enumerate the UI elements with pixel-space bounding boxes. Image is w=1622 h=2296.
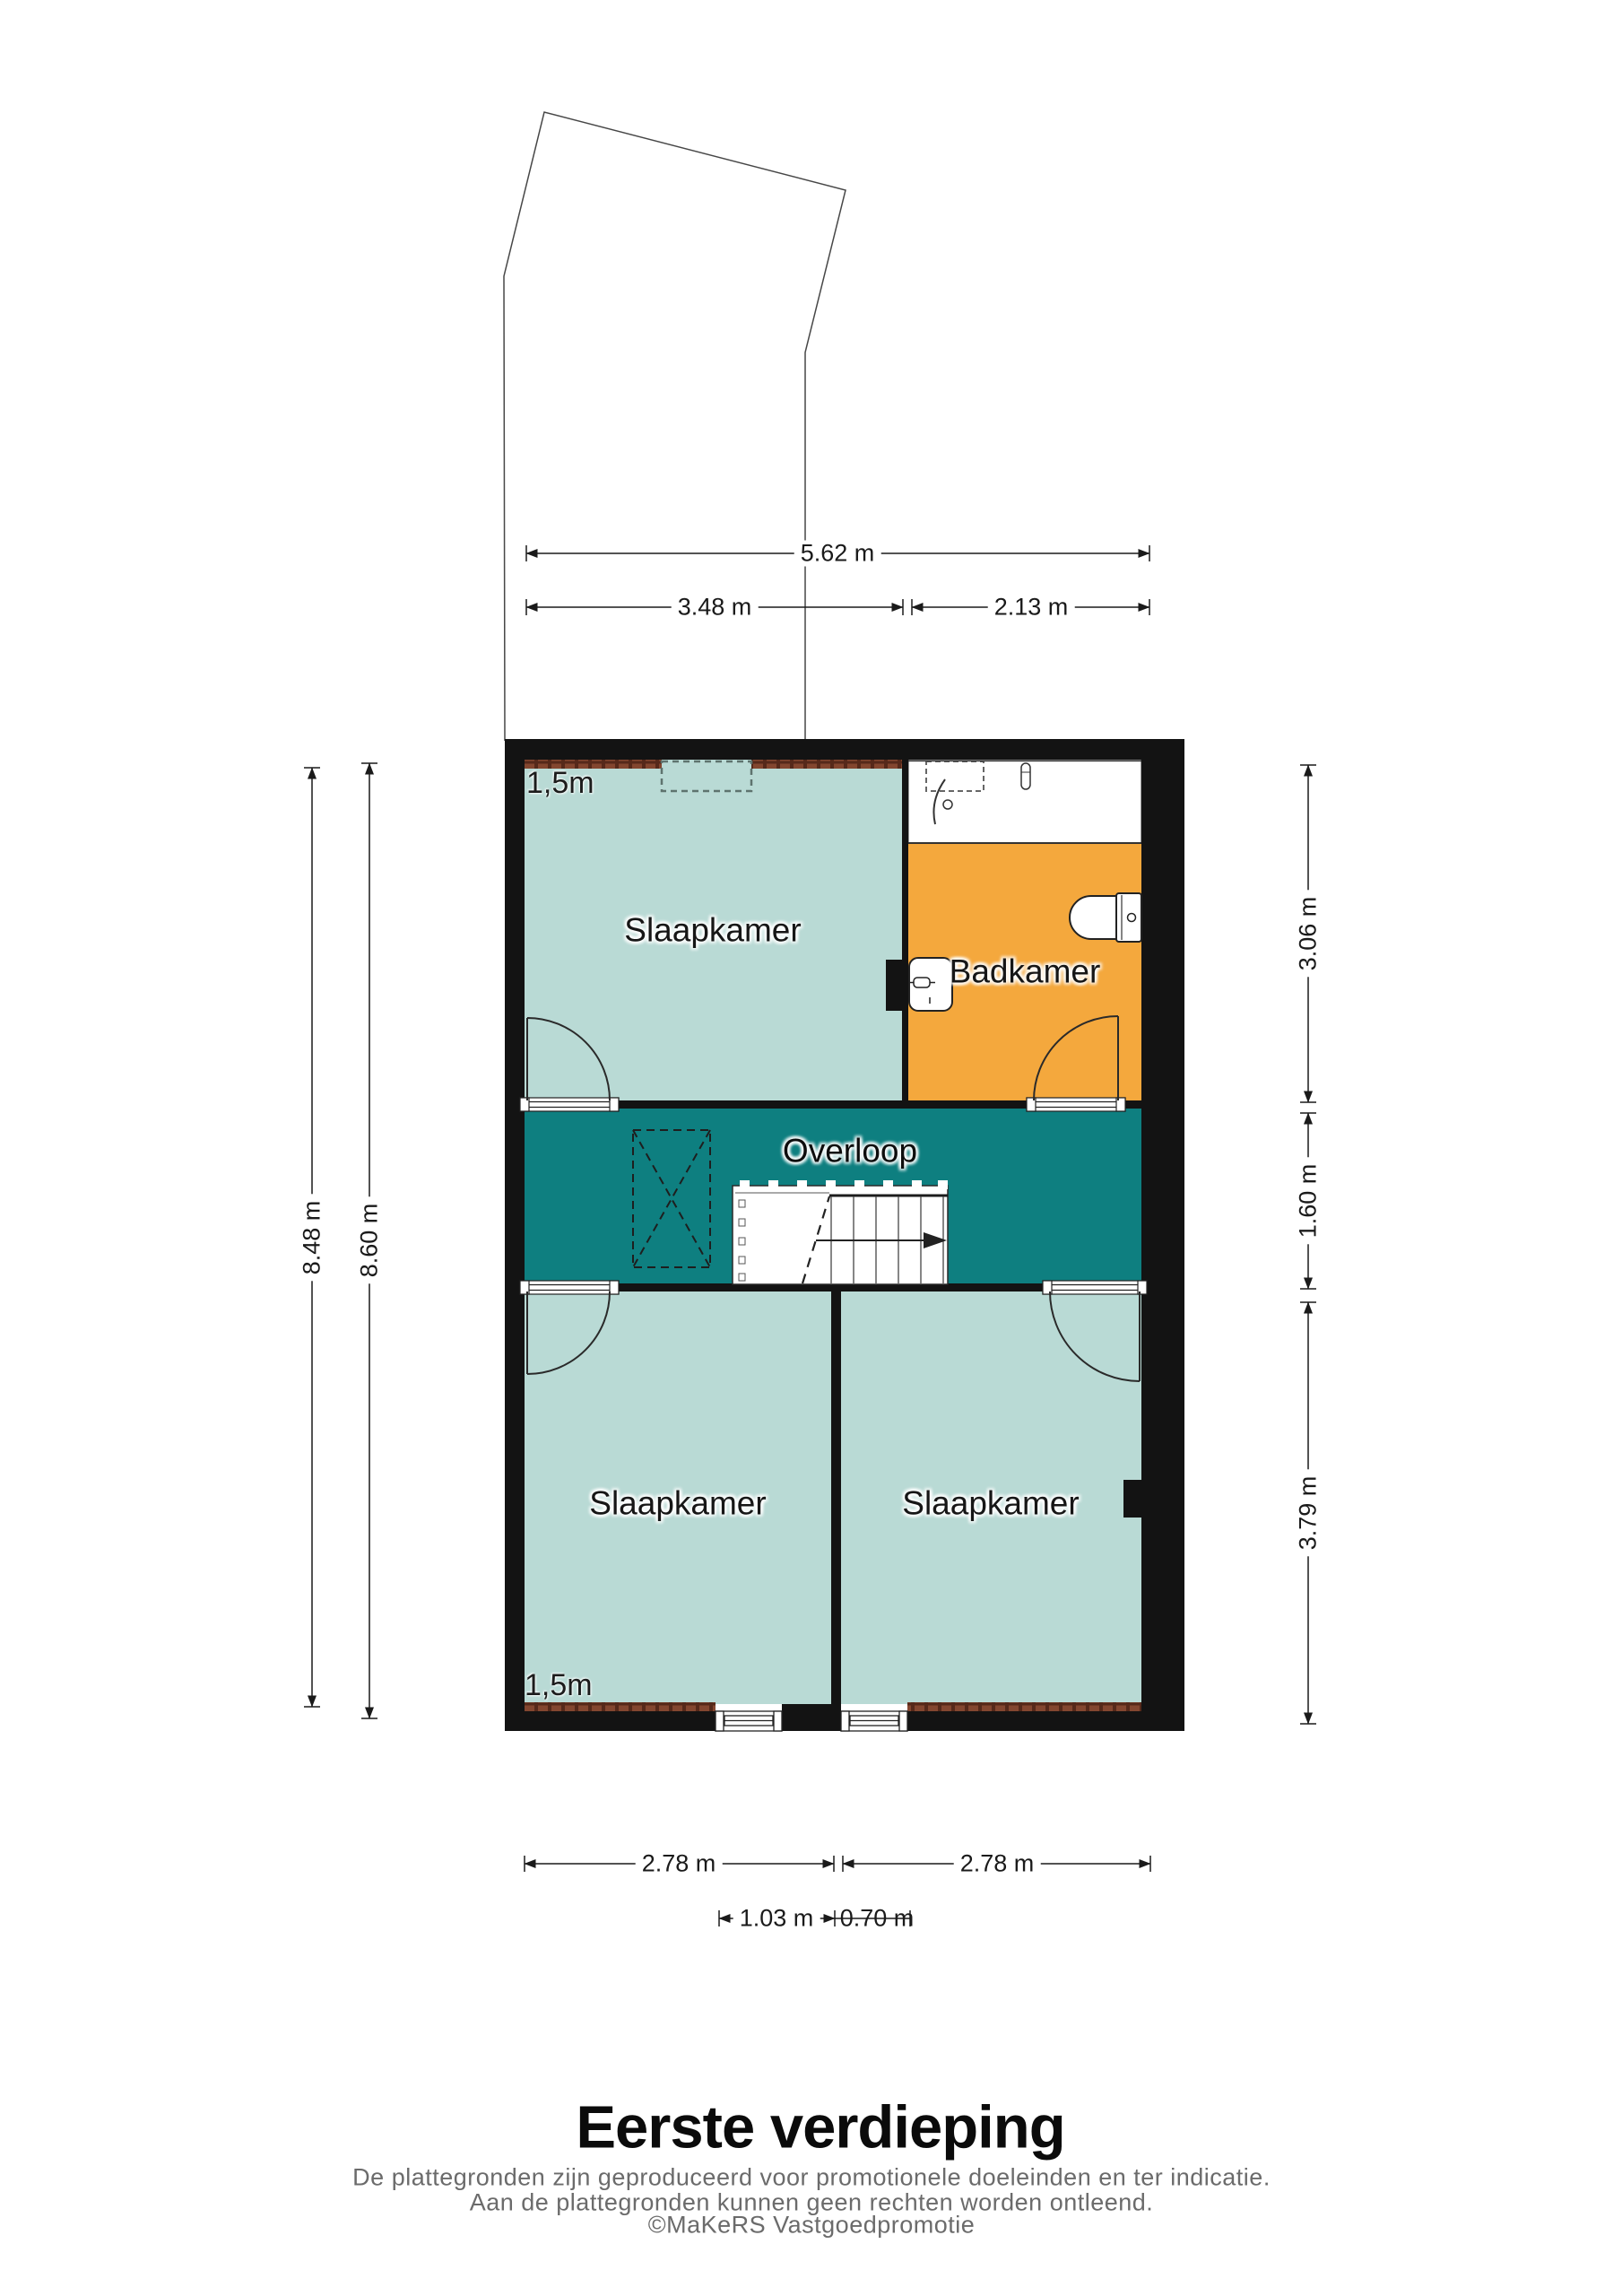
dim-label-right-middle: 1.60 m xyxy=(1296,1158,1322,1245)
headroom-label-bottom: 1,5m xyxy=(525,1670,593,1700)
dim-label-left-inner: 8.60 m xyxy=(357,1197,383,1284)
room-label-bedroom-bottom-left: Slaapkamer xyxy=(589,1487,766,1520)
threshold-bedroom-bottom-left xyxy=(520,1281,619,1294)
dim-label-bottom-left: 2.78 m xyxy=(636,1851,723,1877)
dormer-window-bedroom xyxy=(662,761,751,791)
stairs xyxy=(733,1180,948,1284)
radiator-symbol xyxy=(1021,763,1030,789)
dim-label-top-right: 2.13 m xyxy=(988,595,1075,621)
floorplan-page: Slaapkamer Badkamer Overloop Slaapkamer … xyxy=(0,0,1622,2296)
floor-title: Eerste verdieping xyxy=(576,2098,1064,2158)
dim-label-detail-right: 0.70 m xyxy=(834,1906,921,1932)
threshold-bedroom-bottom-right xyxy=(1043,1281,1147,1294)
room-label-landing: Overloop xyxy=(783,1135,917,1168)
footer-copyright: ©MaKeRS Vastgoedpromotie xyxy=(648,2213,976,2238)
chimney-duct-bedroom-right xyxy=(1123,1480,1141,1518)
room-label-bedroom-bottom-right: Slaapkamer xyxy=(902,1487,1079,1520)
headroom-label-top: 1,5m xyxy=(526,768,594,798)
washbasin-symbol xyxy=(908,958,952,1011)
dim-label-left-outer: 8.48 m xyxy=(299,1195,325,1282)
window-bottom-left xyxy=(716,1711,782,1731)
threshold-bedroom-top xyxy=(520,1098,619,1111)
room-label-bathroom: Badkamer xyxy=(950,955,1101,988)
toilet-symbol xyxy=(1070,893,1141,942)
dormer-window-bathroom xyxy=(926,761,984,791)
footer-disclaimer-line1: De plattegronden zijn geproduceerd voor … xyxy=(352,2166,1271,2190)
dim-label-detail-left: 1.03 m xyxy=(733,1906,820,1932)
dim-label-right-top: 3.06 m xyxy=(1296,891,1322,978)
building-outline xyxy=(504,112,846,741)
window-bottom-right xyxy=(841,1711,907,1731)
dim-label-top-left: 3.48 m xyxy=(672,595,759,621)
dim-label-bottom-right: 2.78 m xyxy=(954,1851,1041,1877)
dim-label-top-total: 5.62 m xyxy=(794,541,881,567)
threshold-bathroom xyxy=(1027,1098,1125,1111)
chimney-duct-bathroom xyxy=(886,960,902,1011)
room-label-bedroom-top: Slaapkamer xyxy=(624,914,801,947)
dim-label-right-bottom: 3.79 m xyxy=(1296,1470,1322,1557)
